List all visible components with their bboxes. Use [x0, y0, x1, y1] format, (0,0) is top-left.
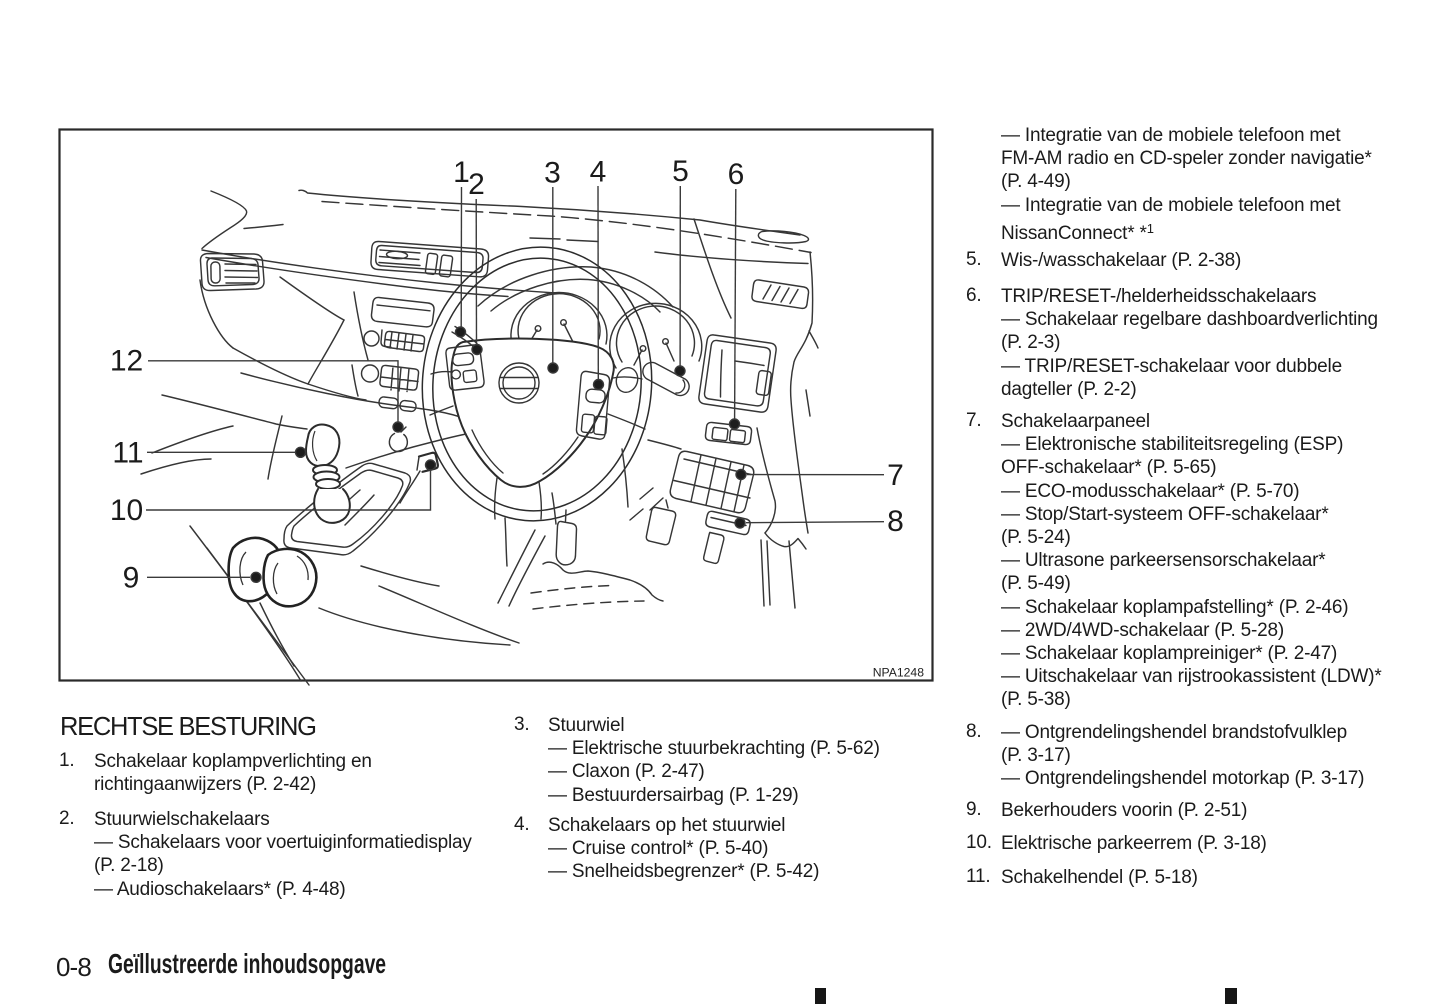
svg-text:2: 2: [468, 168, 485, 201]
svg-text:6: 6: [728, 158, 745, 191]
svg-text:NPA1248: NPA1248: [873, 666, 924, 680]
svg-text:5: 5: [672, 155, 689, 188]
svg-text:11: 11: [112, 437, 143, 470]
svg-text:8: 8: [887, 505, 904, 538]
svg-text:7: 7: [887, 459, 904, 492]
svg-text:3: 3: [544, 157, 561, 190]
svg-text:10: 10: [110, 494, 143, 527]
svg-text:12: 12: [110, 345, 143, 378]
svg-text:9: 9: [123, 562, 140, 595]
svg-text:4: 4: [590, 156, 607, 189]
